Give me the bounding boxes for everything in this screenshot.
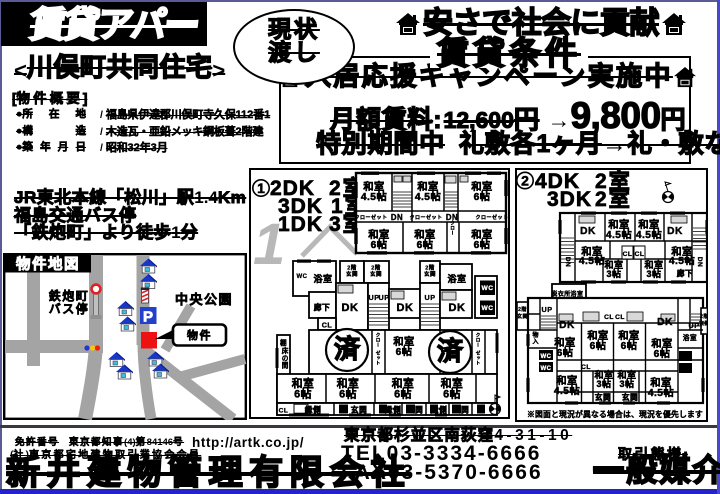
svg-text:6帖: 6帖 <box>474 238 491 251</box>
svg-text:3帖: 3帖 <box>606 268 621 279</box>
svg-text:玄関: 玄関 <box>517 313 528 320</box>
svg-text:6帖: 6帖 <box>339 387 357 401</box>
svg-text:3帖: 3帖 <box>619 378 634 389</box>
svg-text:CL: CL <box>604 314 614 321</box>
svg-text:P: P <box>143 309 153 326</box>
svg-text:CL: CL <box>279 408 289 415</box>
svg-text:UP: UP <box>379 293 390 302</box>
svg-text:3帖: 3帖 <box>646 268 661 279</box>
svg-text:廊下: 廊下 <box>677 268 694 278</box>
svg-text:4.5帖: 4.5帖 <box>415 190 441 203</box>
svg-text:2: 2 <box>521 173 529 189</box>
svg-text:6帖: 6帖 <box>590 339 607 352</box>
svg-text:DK: DK <box>580 226 596 237</box>
svg-text:棚: 棚 <box>280 338 287 347</box>
svg-text:6帖: 6帖 <box>621 339 638 352</box>
svg-text:1DK: 1DK <box>278 213 323 236</box>
svg-text:浴室: 浴室 <box>570 290 583 298</box>
svg-text:WC: WC <box>541 366 552 372</box>
svg-text:2階: 2階 <box>347 264 357 272</box>
svg-text:CL: CL <box>322 321 333 330</box>
svg-text:玄関: 玄関 <box>699 320 708 327</box>
svg-text:物件地図: 物件地図 <box>16 255 80 273</box>
svg-text:6帖: 6帖 <box>443 387 461 401</box>
svg-text:鉄炮町: 鉄炮町 <box>49 288 90 303</box>
svg-text:ゼット: ゼット <box>375 349 381 365</box>
svg-text:物件: 物件 <box>187 328 212 342</box>
svg-text:縁側: 縁側 <box>385 405 402 415</box>
svg-text:浴室: 浴室 <box>447 273 466 284</box>
svg-text:縁側: 縁側 <box>431 405 448 415</box>
svg-text:玄関: 玄関 <box>407 405 424 415</box>
svg-text:WC: WC <box>482 285 494 292</box>
svg-text:DK: DK <box>397 302 414 314</box>
svg-text:4.5帖: 4.5帖 <box>579 254 605 267</box>
svg-text:廊下: 廊下 <box>314 302 331 312</box>
svg-text:WC: WC <box>541 354 552 360</box>
svg-text:3DK: 3DK <box>547 188 592 211</box>
svg-text:6帖: 6帖 <box>394 387 412 401</box>
svg-text:DK: DK <box>342 302 359 314</box>
svg-text:6帖: 6帖 <box>294 387 312 401</box>
svg-text:6帖: 6帖 <box>371 238 388 251</box>
svg-text:脱衣所: 脱衣所 <box>551 290 571 298</box>
svg-text:UP: UP <box>425 293 436 302</box>
svg-text:DK: DK <box>667 226 683 237</box>
svg-text:UP: UP <box>542 305 553 314</box>
svg-text:クローゼット: クローゼット <box>475 214 508 221</box>
svg-text:2室: 2室 <box>595 187 634 211</box>
svg-text:玄関: 玄関 <box>622 392 639 402</box>
svg-text:6帖: 6帖 <box>417 238 434 251</box>
svg-text:1: 1 <box>257 180 265 196</box>
svg-text:6帖: 6帖 <box>557 346 574 359</box>
svg-text:CL: CL <box>581 364 591 371</box>
svg-text:4.5帖: 4.5帖 <box>361 190 387 203</box>
svg-text:ゼット: ゼット <box>475 349 481 365</box>
svg-text:2階: 2階 <box>518 306 527 313</box>
svg-text:6帖: 6帖 <box>474 190 491 203</box>
svg-text:玄関: 玄関 <box>424 270 436 278</box>
svg-text:縁側: 縁側 <box>305 405 322 415</box>
svg-text:WC: WC <box>482 305 494 312</box>
svg-text:DK: DK <box>559 320 575 331</box>
svg-text:4.5帖: 4.5帖 <box>669 254 695 267</box>
svg-text:2階: 2階 <box>425 264 435 272</box>
svg-text:4.5帖: 4.5帖 <box>606 228 632 241</box>
svg-text:6帖: 6帖 <box>654 347 671 360</box>
svg-text:玄関: 玄関 <box>370 270 382 278</box>
svg-text:3帖: 3帖 <box>596 378 611 389</box>
svg-text:4.5帖: 4.5帖 <box>636 228 662 241</box>
svg-text:DK: DK <box>657 317 673 328</box>
svg-text:CL: CL <box>623 251 633 258</box>
svg-text:DN: DN <box>564 257 571 268</box>
svg-text:玄関: 玄関 <box>595 392 612 402</box>
svg-text:クローゼット: クローゼット <box>354 214 387 221</box>
svg-text:クロー: クロー <box>475 331 481 347</box>
svg-text:6帖: 6帖 <box>396 345 413 358</box>
svg-text:浴室: 浴室 <box>683 333 697 342</box>
svg-text:WC: WC <box>297 274 308 280</box>
svg-text:2階: 2階 <box>700 313 708 320</box>
svg-text:4.5帖: 4.5帖 <box>648 386 674 399</box>
svg-text:クロー: クロー <box>375 331 381 347</box>
svg-text:CL: CL <box>615 314 625 321</box>
svg-text:DN: DN <box>696 257 703 268</box>
svg-text:4.5帖: 4.5帖 <box>554 384 580 397</box>
svg-text:UP: UP <box>689 321 700 330</box>
svg-text:バス停: バス停 <box>49 301 90 316</box>
svg-text:DN: DN <box>391 213 403 222</box>
svg-text:DK: DK <box>449 302 466 314</box>
svg-text:玄関: 玄関 <box>346 270 358 278</box>
svg-text:クロー: クロー <box>450 219 456 235</box>
svg-text:玄関: 玄関 <box>453 405 470 415</box>
svg-text:中央公園: 中央公園 <box>175 292 233 307</box>
svg-text:浴室: 浴室 <box>313 273 332 284</box>
svg-text:玄関: 玄関 <box>351 405 368 415</box>
svg-text:2階: 2階 <box>371 264 381 272</box>
svg-text:クローゼット: クローゼット <box>409 214 442 221</box>
svg-text:CL: CL <box>635 251 645 258</box>
svg-text:※図面と現況が異なる場合は、現況を優先します: ※図面と現況が異なる場合は、現況を優先します <box>527 409 703 419</box>
